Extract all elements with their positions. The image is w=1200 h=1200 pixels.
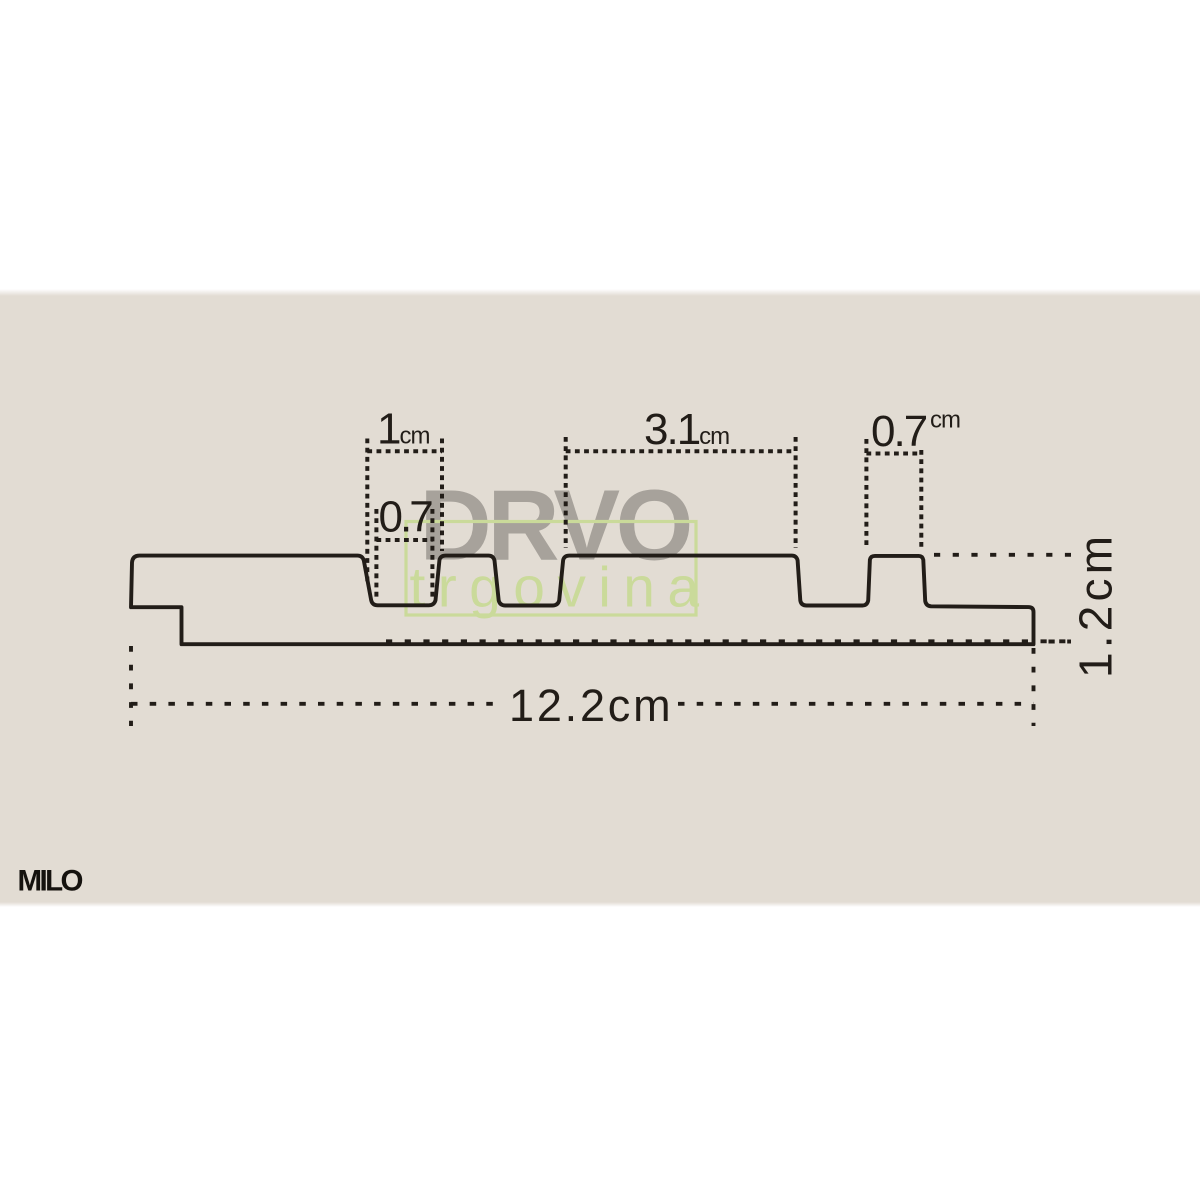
- svg-text:cm: cm: [930, 407, 960, 434]
- svg-text:1.2cm: 1.2cm: [1070, 532, 1122, 678]
- svg-text:0.7: 0.7: [871, 407, 927, 456]
- svg-text:12.2cm: 12.2cm: [509, 680, 673, 731]
- svg-text:MILO: MILO: [18, 865, 83, 898]
- svg-text:0.7: 0.7: [379, 493, 433, 542]
